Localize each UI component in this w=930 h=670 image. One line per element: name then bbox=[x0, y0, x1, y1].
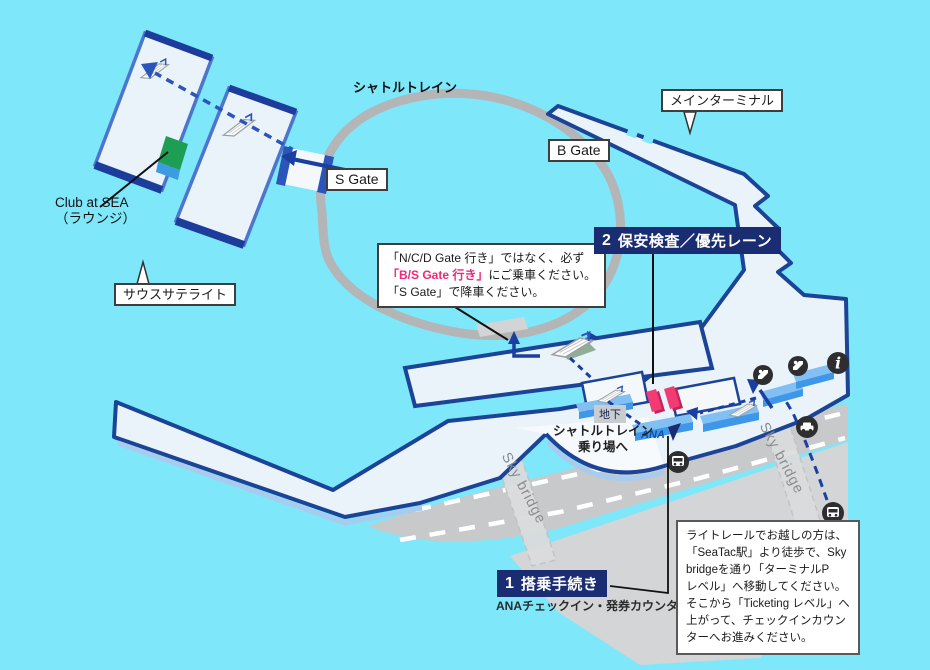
basement-chip: 地下 bbox=[594, 405, 626, 423]
info-line: bridgeを通り「ターミナルP bbox=[686, 562, 850, 579]
bus-icon bbox=[667, 451, 689, 473]
car-icon bbox=[796, 416, 818, 438]
info-line: ターへお進みください。 bbox=[686, 630, 850, 647]
security-step-badge: 2 保安検査／優先レーン bbox=[594, 227, 781, 254]
shuttle-train-label: シャトルトレイン bbox=[353, 77, 457, 96]
info-line: ライトレールでお越しの方は、 bbox=[686, 528, 850, 545]
security-step-title: 保安検査／優先レーン bbox=[618, 230, 772, 251]
info-line: 「SeaTac駅」より徒歩で、Sky bbox=[686, 545, 850, 562]
info-line: 上がって、チェックインカウン bbox=[686, 613, 850, 630]
escalator-icon bbox=[788, 356, 808, 376]
note-line3: 「S Gate」で降車ください。 bbox=[387, 284, 596, 301]
note-line2-highlight: 「B/S Gate 行き」 bbox=[387, 268, 488, 282]
boarding-step-number: 1 bbox=[505, 575, 514, 593]
note-line2: 「B/S Gate 行き」にご乗車ください。 bbox=[387, 267, 596, 284]
info-icon bbox=[827, 352, 849, 374]
shuttle-platform-line1: シャトルトレイン bbox=[548, 423, 658, 439]
club-lounge-line2: （ラウンジ） bbox=[55, 211, 136, 227]
club-lounge-line1: Club at SEA bbox=[55, 195, 136, 211]
escalator-icon bbox=[753, 365, 773, 385]
note-line2-rest: にご乗車ください。 bbox=[488, 268, 596, 282]
club-lounge-label: Club at SEA （ラウンジ） bbox=[55, 195, 136, 227]
info-line: そこから「Ticketing レベル」へ bbox=[686, 596, 850, 613]
shuttle-platform-line2: 乗り場へ bbox=[548, 439, 658, 455]
note-line1: 「N/C/D Gate 行き」ではなく、必ず bbox=[387, 250, 596, 267]
shuttle-note-box: 「N/C/D Gate 行き」ではなく、必ず 「B/S Gate 行き」にご乗車… bbox=[377, 243, 606, 308]
b-gate-label: B Gate bbox=[548, 139, 610, 162]
boarding-step-badge: 1 搭乗手続き bbox=[497, 570, 607, 597]
shuttle-platform-label: シャトルトレイン 乗り場へ bbox=[548, 423, 658, 455]
terminal-map: i bbox=[0, 0, 930, 670]
s-gate-label: S Gate bbox=[326, 168, 388, 191]
security-step-number: 2 bbox=[602, 232, 611, 250]
info-line: レベル」へ移動してください。 bbox=[686, 579, 850, 596]
boarding-step-title: 搭乗手続き bbox=[521, 573, 599, 594]
boarding-step-subtitle: ANAチェックイン・発券カウンター bbox=[496, 597, 690, 614]
light-rail-info-box: ライトレールでお越しの方は、 「SeaTac駅」より徒歩で、Sky bridge… bbox=[676, 520, 860, 655]
main-terminal-label: メインターミナル bbox=[661, 89, 783, 112]
south-satellite-label: サウスサテライト bbox=[114, 283, 236, 306]
